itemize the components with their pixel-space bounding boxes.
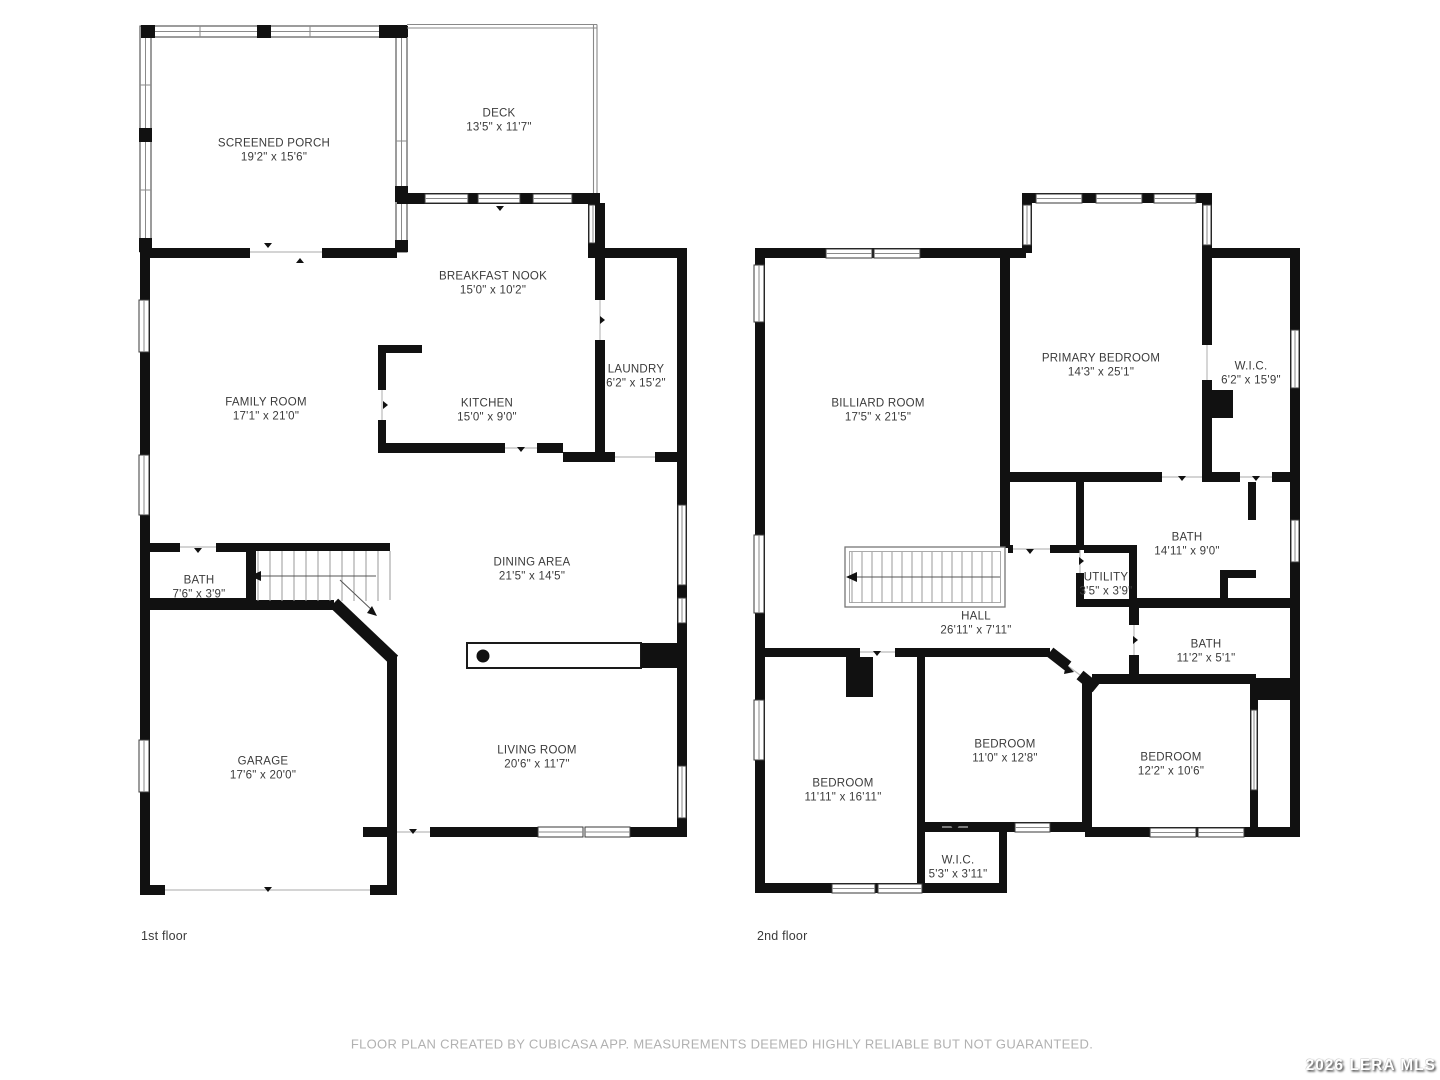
room-dims: 7'6" x 3'9"	[172, 588, 225, 602]
room-label-bath-large: BATH 14'11" x 9'0"	[1154, 532, 1219, 559]
room-name: BATH	[172, 575, 225, 589]
room-name: UTILITY	[1079, 572, 1132, 586]
room-label-wic-small: W.I.C. 5'3" x 3'11"	[929, 855, 988, 882]
room-label-primary-bedroom: PRIMARY BEDROOM 14'3" x 25'1"	[1042, 353, 1160, 380]
room-name: GARAGE	[230, 756, 296, 770]
room-label-laundry: LAUNDRY 6'2" x 15'2"	[606, 364, 666, 391]
room-name: W.I.C.	[1221, 361, 1281, 375]
room-dims: 21'5" x 14'5"	[494, 570, 571, 584]
room-name: PRIMARY BEDROOM	[1042, 353, 1160, 367]
room-label-garage: GARAGE 17'6" x 20'0"	[230, 756, 296, 783]
room-label-dining-area: DINING AREA 21'5" x 14'5"	[494, 557, 571, 584]
room-dims: 12'2" x 10'6"	[1138, 765, 1204, 779]
room-name: BEDROOM	[804, 778, 881, 792]
room-name: BATH	[1154, 532, 1219, 546]
room-dims: 15'0" x 10'2"	[439, 284, 547, 298]
room-label-bedroom-middle: BEDROOM 11'0" x 12'8"	[972, 739, 1037, 766]
first-floor-caption: 1st floor	[141, 929, 187, 943]
room-name: LIVING ROOM	[497, 745, 576, 759]
room-label-bath-first: BATH 7'6" x 3'9"	[172, 575, 225, 602]
room-name: KITCHEN	[457, 398, 517, 412]
room-label-billiard-room: BILLIARD ROOM 17'5" x 21'5"	[831, 398, 924, 425]
room-dims: 11'11" x 16'11"	[804, 791, 881, 805]
room-label-utility: UTILITY 3'5" x 3'9"	[1079, 572, 1132, 599]
room-name: BEDROOM	[1138, 752, 1204, 766]
room-label-screened-porch: SCREENED PORCH 19'2" x 15'6"	[218, 138, 330, 165]
disclaimer-text: FLOOR PLAN CREATED BY CUBICASA APP. MEAS…	[351, 1037, 1093, 1052]
floor-plan-page: SCREENED PORCH 19'2" x 15'6" DECK 13'5" …	[0, 0, 1440, 1080]
room-label-hall: HALL 26'11" x 7'11"	[940, 611, 1011, 638]
second-floor-caption: 2nd floor	[757, 929, 807, 943]
room-dims: 17'5" x 21'5"	[831, 411, 924, 425]
room-name: BILLIARD ROOM	[831, 398, 924, 412]
room-name: BREAKFAST NOOK	[439, 271, 547, 285]
room-dims: 17'1" x 21'0"	[225, 410, 307, 424]
room-dims: 17'6" x 20'0"	[230, 769, 296, 783]
room-name: W.I.C.	[929, 855, 988, 869]
room-dims: 20'6" x 11'7"	[497, 758, 576, 772]
room-dims: 6'2" x 15'9"	[1221, 374, 1281, 388]
room-dims: 11'2" x 5'1"	[1177, 652, 1236, 666]
room-name: FAMILY ROOM	[225, 397, 307, 411]
room-name: DINING AREA	[494, 557, 571, 571]
room-dims: 3'5" x 3'9"	[1079, 585, 1132, 599]
room-dims: 15'0" x 9'0"	[457, 411, 517, 425]
room-label-deck: DECK 13'5" x 11'7"	[466, 108, 531, 135]
room-name: SCREENED PORCH	[218, 138, 330, 152]
room-label-wic-primary: W.I.C. 6'2" x 15'9"	[1221, 361, 1281, 388]
room-dims: 26'11" x 7'11"	[940, 624, 1011, 638]
room-name: LAUNDRY	[606, 364, 666, 378]
room-name: DECK	[466, 108, 531, 122]
room-dims: 19'2" x 15'6"	[218, 151, 330, 165]
floor-plan-drawing	[0, 0, 1440, 1080]
room-label-breakfast-nook: BREAKFAST NOOK 15'0" x 10'2"	[439, 271, 547, 298]
room-label-living-room: LIVING ROOM 20'6" x 11'7"	[497, 745, 576, 772]
room-dims: 13'5" x 11'7"	[466, 121, 531, 135]
room-label-bedroom-east: BEDROOM 12'2" x 10'6"	[1138, 752, 1204, 779]
room-name: HALL	[940, 611, 1011, 625]
room-label-family-room: FAMILY ROOM 17'1" x 21'0"	[225, 397, 307, 424]
room-dims: 6'2" x 15'2"	[606, 377, 666, 391]
room-label-bath-small: BATH 11'2" x 5'1"	[1177, 639, 1236, 666]
room-dims: 14'3" x 25'1"	[1042, 366, 1160, 380]
room-dims: 14'11" x 9'0"	[1154, 545, 1219, 559]
room-name: BATH	[1177, 639, 1236, 653]
room-name: BEDROOM	[972, 739, 1037, 753]
room-dims: 11'0" x 12'8"	[972, 752, 1037, 766]
mls-watermark: 2026 LERA MLS	[1306, 1057, 1436, 1075]
room-dims: 5'3" x 3'11"	[929, 868, 988, 882]
room-label-bedroom-west: BEDROOM 11'11" x 16'11"	[804, 778, 881, 805]
room-label-kitchen: KITCHEN 15'0" x 9'0"	[457, 398, 517, 425]
